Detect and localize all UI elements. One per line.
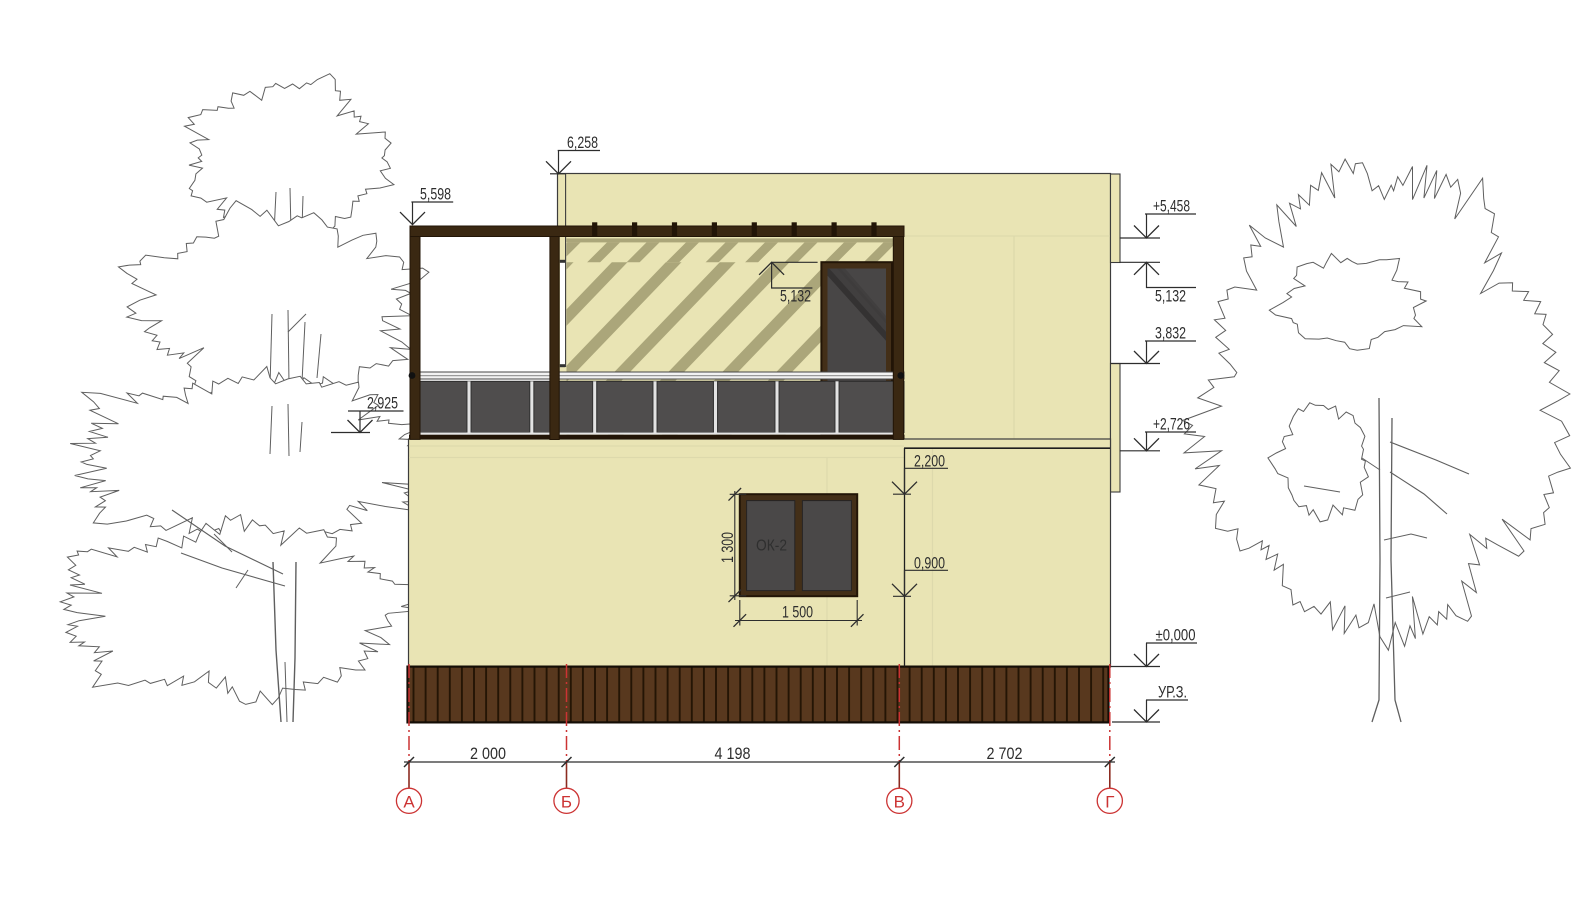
svg-text:Б: Б xyxy=(561,792,572,811)
svg-text:2 702: 2 702 xyxy=(987,744,1023,763)
svg-text:ОК-2: ОК-2 xyxy=(756,538,787,555)
svg-text:1 300: 1 300 xyxy=(718,532,737,563)
svg-text:А: А xyxy=(403,792,415,811)
svg-text:5,598: 5,598 xyxy=(420,185,451,204)
svg-text:5,132: 5,132 xyxy=(1155,287,1186,306)
svg-text:4 198: 4 198 xyxy=(715,744,751,763)
svg-text:0,900: 0,900 xyxy=(914,554,945,573)
svg-text:5,132: 5,132 xyxy=(780,287,811,306)
svg-text:2,925: 2,925 xyxy=(367,394,398,413)
svg-text:1 500: 1 500 xyxy=(782,603,813,622)
svg-text:+5,458: +5,458 xyxy=(1153,197,1190,216)
svg-text:3,832: 3,832 xyxy=(1155,324,1186,343)
svg-text:±0,000: ±0,000 xyxy=(1156,626,1196,645)
svg-text:В: В xyxy=(894,792,905,811)
svg-text:2,200: 2,200 xyxy=(914,452,945,471)
svg-text:6,258: 6,258 xyxy=(567,133,598,152)
svg-text:Г: Г xyxy=(1105,792,1114,811)
svg-text:2 000: 2 000 xyxy=(470,744,506,763)
svg-text:УР.З.: УР.З. xyxy=(1158,683,1187,702)
svg-text:+2,726: +2,726 xyxy=(1153,415,1190,434)
